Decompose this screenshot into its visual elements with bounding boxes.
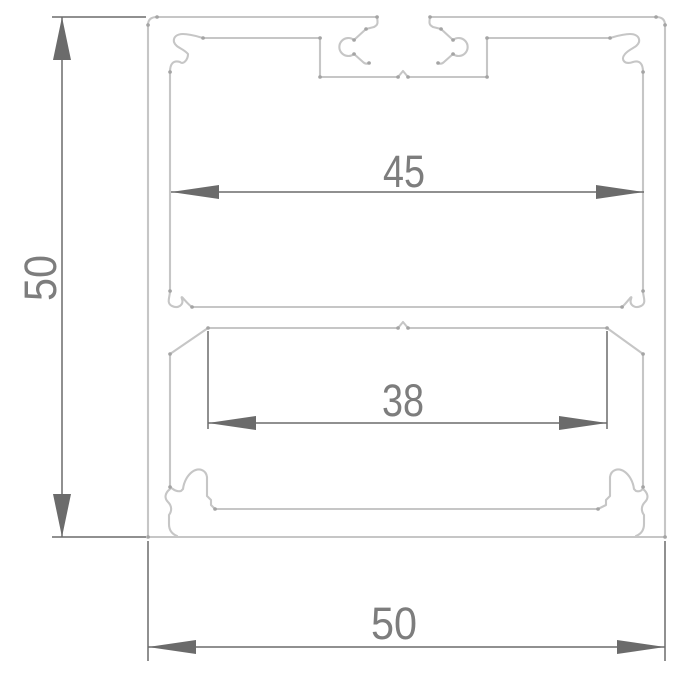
- dimension-label-inner-top-width: 45: [383, 146, 425, 197]
- dimension-label-overall-height: 50: [15, 255, 66, 301]
- technical-drawing: 50 45 38 50: [0, 0, 682, 673]
- profile-slot-right-boss: [429, 17, 467, 64]
- profile-outline-group: [148, 17, 665, 537]
- profile-bottom-right-channel: [636, 489, 647, 536]
- profile-drawing-canvas: 50 45 38 50: [0, 0, 682, 673]
- profile-slot-left-boss: [339, 17, 377, 64]
- height-dimension-lines: [52, 17, 146, 537]
- dimension-inner-bottom-width: 38: [208, 331, 607, 430]
- dimension-label-inner-bottom-width: 38: [382, 375, 424, 426]
- dimension-inner-top-width: 45: [171, 146, 644, 199]
- profile-bottom-left-channel: [166, 489, 177, 536]
- dimension-overall-width: 50: [148, 541, 665, 661]
- dimension-label-overall-width: 50: [371, 598, 417, 649]
- vertex-dots: [148, 17, 665, 537]
- dimension-overall-height: 50: [15, 17, 146, 537]
- profile-outer-contour: [148, 17, 665, 537]
